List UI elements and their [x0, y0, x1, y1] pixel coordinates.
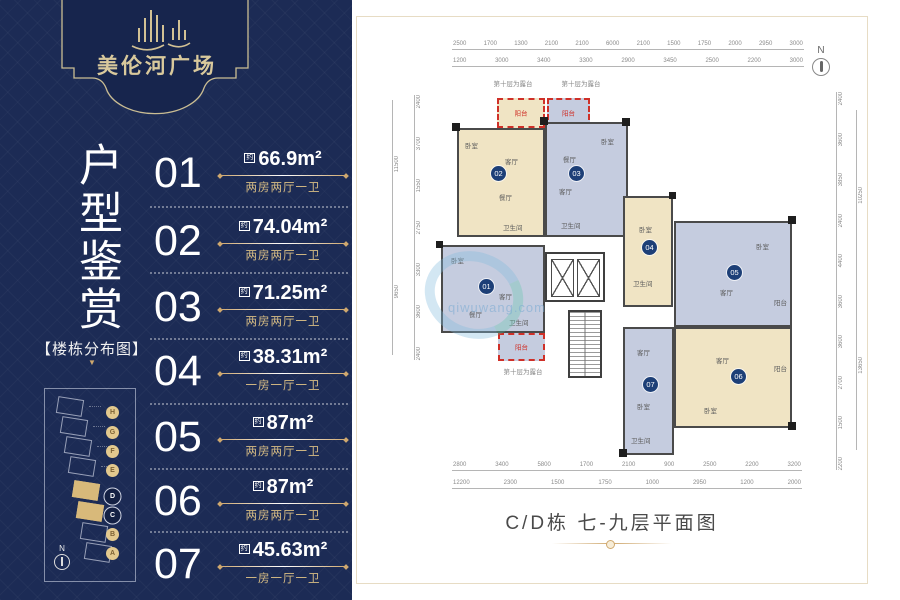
- ornament-line: [220, 175, 346, 176]
- room-label: 客厅: [637, 347, 650, 357]
- map-leader-line: [93, 426, 105, 427]
- stairwell: [568, 310, 602, 378]
- plan-unit-06: 客厅 卧室 阳台 06: [674, 327, 792, 428]
- map-building-badge-b: B: [106, 528, 119, 541]
- unit-area-value: 74.04m²: [253, 216, 328, 238]
- unit-area: 约38.31m²: [216, 346, 350, 369]
- map-compass-label: N: [53, 545, 71, 553]
- unit-badge-07: 07: [643, 377, 658, 392]
- balcony-label: 阳台: [549, 108, 588, 118]
- wall-pillar: [436, 241, 443, 248]
- room-label: 卧室: [704, 405, 717, 415]
- map-building-badge-a: A: [106, 547, 119, 560]
- ornament-line: [220, 243, 346, 244]
- unit-badge-05: 05: [727, 265, 742, 280]
- approx-icon: 约: [239, 351, 250, 361]
- unit-layout-desc: 两房两厅一卫: [220, 179, 346, 195]
- dim-chain-top-2: 120030003400330029003450250022003000: [452, 57, 804, 67]
- dotted-divider: [150, 468, 348, 470]
- ornament-line: [220, 373, 346, 374]
- unit-number: 06: [154, 476, 202, 526]
- dim-chain-top-1: 2500170013002100210060002100150017502000…: [452, 40, 804, 50]
- plan-unit-05: 卧室 客厅 阳台 05: [674, 221, 792, 327]
- map-building-badge-e: E: [106, 464, 119, 477]
- caption-ornament: [552, 543, 672, 544]
- unit-area: 约74.04m²: [216, 216, 350, 239]
- ornament-line: [220, 503, 346, 504]
- dotted-divider: [150, 403, 348, 405]
- room-label: 卧室: [637, 401, 650, 411]
- unit-layout-desc: 一房一厅一卫: [220, 377, 346, 393]
- room-label: 卧室: [601, 136, 614, 146]
- building-footprint: [60, 416, 88, 437]
- room-label: 卫生间: [631, 435, 651, 445]
- building-map-label: 【楼栋分布图】: [24, 338, 160, 359]
- unit-number: 02: [154, 216, 202, 266]
- elevator-core: [545, 252, 605, 302]
- room-label: 卧室: [465, 140, 478, 150]
- unit-area: 约71.25m²: [216, 282, 350, 305]
- room-label: 卫生间: [561, 220, 581, 230]
- unit-list-item-07: 07 约45.63m² 一房一厅一卫: [150, 539, 350, 591]
- wall-pillar: [788, 216, 796, 224]
- map-leader-line: [89, 406, 101, 407]
- terrace-note: 第十层为露台: [488, 366, 558, 376]
- unit-area-value: 87m²: [267, 476, 314, 498]
- balcony-terrace-02: 阳台: [497, 98, 545, 128]
- plan-caption: C/D栋 七-九层平面图: [462, 508, 762, 535]
- dim-chain-bottom-2: 122002300150017501000295012002000: [452, 479, 802, 489]
- map-building-badge-d: D: [106, 490, 119, 503]
- unit-area-value: 71.25m²: [253, 282, 328, 304]
- wall-pillar: [669, 192, 676, 199]
- unit-layout-desc: 两房两厅一卫: [220, 313, 346, 329]
- map-compass-icon: N: [53, 545, 71, 570]
- page: 美伦河广场 户型鉴赏 【楼栋分布图】 ▼ H G F E D C B A: [0, 0, 900, 600]
- ornament-line: [220, 309, 346, 310]
- approx-icon: 约: [253, 417, 264, 427]
- dotted-divider: [150, 206, 348, 208]
- room-label: 卫生间: [633, 278, 653, 288]
- building-footprint-highlight-c: [76, 501, 104, 522]
- brand-name: 美伦河广场: [63, 50, 251, 80]
- wall-pillar: [452, 123, 460, 131]
- building-distribution-map: H G F E D C B A N: [44, 388, 136, 582]
- plan-unit-03: 餐厅 客厅 卧室 卫生间 03: [545, 122, 628, 237]
- unit-badge-06: 06: [731, 369, 746, 384]
- map-building-badge-g: G: [106, 426, 119, 439]
- unit-area-value: 45.63m²: [253, 539, 328, 561]
- unit-list-item-03: 03 约71.25m² 两房两厅一卫: [150, 282, 350, 334]
- room-label: 客厅: [505, 156, 518, 166]
- unit-list-item-04: 04 约38.31m² 一房一厅一卫: [150, 346, 350, 398]
- unit-list-item-02: 02 约74.04m² 两房两厅一卫: [150, 216, 350, 268]
- balcony-label: 阳台: [500, 342, 543, 352]
- wall-pillar: [788, 422, 796, 430]
- unit-number: 03: [154, 282, 202, 332]
- dim-chain-left-totals: 115009650: [392, 100, 400, 355]
- room-label: 客厅: [716, 355, 729, 365]
- dotted-divider: [150, 531, 348, 533]
- dim-chain-bottom-1: 28003400580017002100900250022003200: [452, 461, 802, 471]
- unit-layout-desc: 一房一厅一卫: [220, 570, 346, 586]
- unit-badge-03: 03: [569, 166, 584, 181]
- room-label: 客厅: [559, 186, 572, 196]
- approx-icon: 约: [239, 544, 250, 554]
- plan-unit-07: 客厅 卧室 卫生间 07: [623, 327, 674, 455]
- map-building-badge-c: C: [106, 509, 119, 522]
- approx-icon: 约: [239, 221, 250, 231]
- unit-area: 约66.9m²: [216, 148, 350, 171]
- building-footprint: [80, 522, 108, 543]
- unit-area-value: 66.9m²: [258, 148, 321, 170]
- dim-chain-right-totals: 1025013650: [856, 110, 864, 450]
- balcony-label: 阳台: [499, 108, 543, 118]
- terrace-note: 第十层为露台: [546, 78, 616, 88]
- ornament-line: [220, 439, 346, 440]
- map-building-badge-h: H: [106, 406, 119, 419]
- elevator-shaft-icon: [551, 259, 574, 297]
- unit-layout-desc: 两房两厅一卫: [220, 507, 346, 523]
- left-brand-panel: 美伦河广场 户型鉴赏 【楼栋分布图】 ▼ H G F E D C B A: [0, 0, 352, 600]
- chevron-down-icon: ▼: [24, 358, 160, 367]
- unit-area-value: 38.31m²: [253, 346, 328, 368]
- unit-list-item-05: 05 约87m² 两房两厅一卫: [150, 412, 350, 464]
- plan-unit-04: 卧室 卫生间 04: [623, 196, 673, 307]
- terrace-note: 第十层为露台: [478, 78, 548, 88]
- wall-pillar: [540, 117, 548, 125]
- approx-icon: 约: [244, 153, 255, 163]
- dim-chain-left: 2400370015502750330036002400: [414, 95, 422, 360]
- unit-list-item-06: 06 约87m² 两房两厅一卫: [150, 476, 350, 528]
- building-footprint: [68, 456, 96, 477]
- room-label: 阳台: [774, 363, 787, 373]
- room-label: 卧室: [756, 241, 769, 251]
- unit-layout-desc: 两房两厅一卫: [220, 443, 346, 459]
- unit-number: 05: [154, 412, 202, 462]
- dim-chain-right: 2400360038502400440036003600270015002200: [836, 92, 844, 470]
- unit-area: 约45.63m²: [216, 539, 350, 562]
- compass-icon: N: [806, 46, 836, 76]
- unit-area-value: 87m²: [267, 412, 314, 434]
- unit-area: 约87m²: [216, 412, 350, 435]
- room-label: 餐厅: [563, 154, 576, 164]
- room-label: 卧室: [639, 224, 652, 234]
- unit-number: 07: [154, 539, 202, 589]
- room-label: 阳台: [774, 297, 787, 307]
- map-building-badge-f: F: [106, 445, 119, 458]
- balcony-terrace-01: 阳台: [498, 333, 545, 361]
- unit-badge-02: 02: [491, 166, 506, 181]
- room-label: 餐厅: [499, 192, 512, 202]
- dotted-divider: [150, 272, 348, 274]
- approx-icon: 约: [239, 287, 250, 297]
- unit-list-item-01: 01 约66.9m² 两房两厅一卫: [150, 148, 350, 200]
- building-footprint-highlight-d: [72, 480, 100, 501]
- unit-area: 约87m²: [216, 476, 350, 499]
- approx-icon: 约: [253, 481, 264, 491]
- wall-pillar: [619, 449, 627, 457]
- page-title-vertical: 户型鉴赏: [64, 142, 128, 334]
- unit-number: 04: [154, 346, 202, 396]
- compass-label: N: [806, 46, 836, 56]
- watermark-text: qiwuwang.com: [448, 300, 546, 315]
- unit-layout-desc: 两房两厅一卫: [220, 247, 346, 263]
- dotted-divider: [150, 338, 348, 340]
- building-footprint: [56, 396, 84, 417]
- ornament-line: [220, 566, 346, 567]
- wall-pillar: [622, 118, 630, 126]
- elevator-shaft-icon: [577, 259, 600, 297]
- room-label: 卫生间: [503, 222, 523, 232]
- unit-number: 01: [154, 148, 202, 198]
- building-footprint: [64, 436, 92, 457]
- unit-badge-04: 04: [642, 240, 657, 255]
- plan-unit-02: 卧室 客厅 餐厅 卫生间 02: [457, 128, 545, 237]
- room-label: 客厅: [720, 287, 733, 297]
